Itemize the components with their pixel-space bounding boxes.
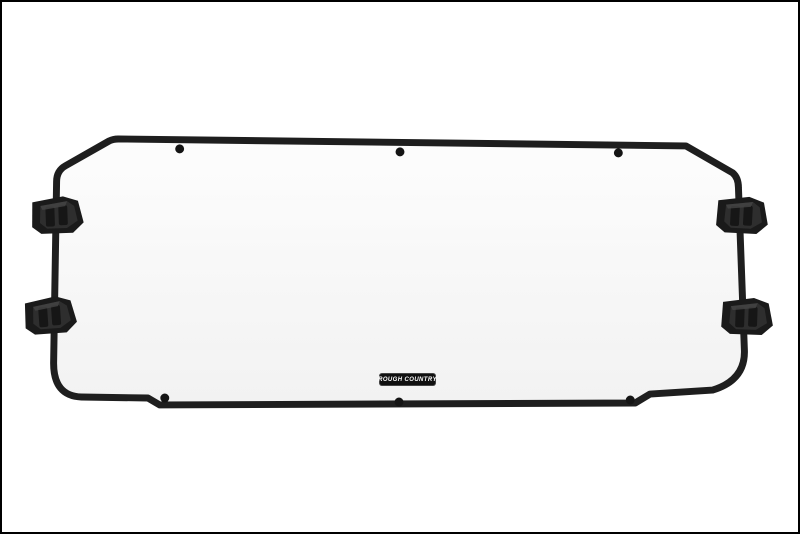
mount-clamp-bottom-right: [721, 297, 774, 336]
windshield-illustration: [2, 2, 798, 532]
mount-clamp-top-right: [716, 195, 769, 234]
frame-bolt-bottom-center: [395, 398, 404, 407]
frame-bolt-top-center: [396, 147, 405, 156]
frame-bolt-bottom-right: [626, 396, 635, 405]
frame-bolt-top-right: [614, 148, 623, 157]
frame-bolt-top-left: [175, 144, 184, 153]
brand-badge-label: ROUGH COUNTRY: [378, 377, 437, 383]
brand-badge: ROUGH COUNTRY: [379, 373, 436, 386]
mount-clamp-bottom-left: [24, 295, 78, 335]
frame-bolt-bottom-left: [160, 394, 169, 403]
product-photo: ROUGH COUNTRY: [0, 0, 800, 534]
windshield-frame-and-panel: [54, 139, 745, 405]
mount-clamp-top-left: [31, 196, 84, 235]
